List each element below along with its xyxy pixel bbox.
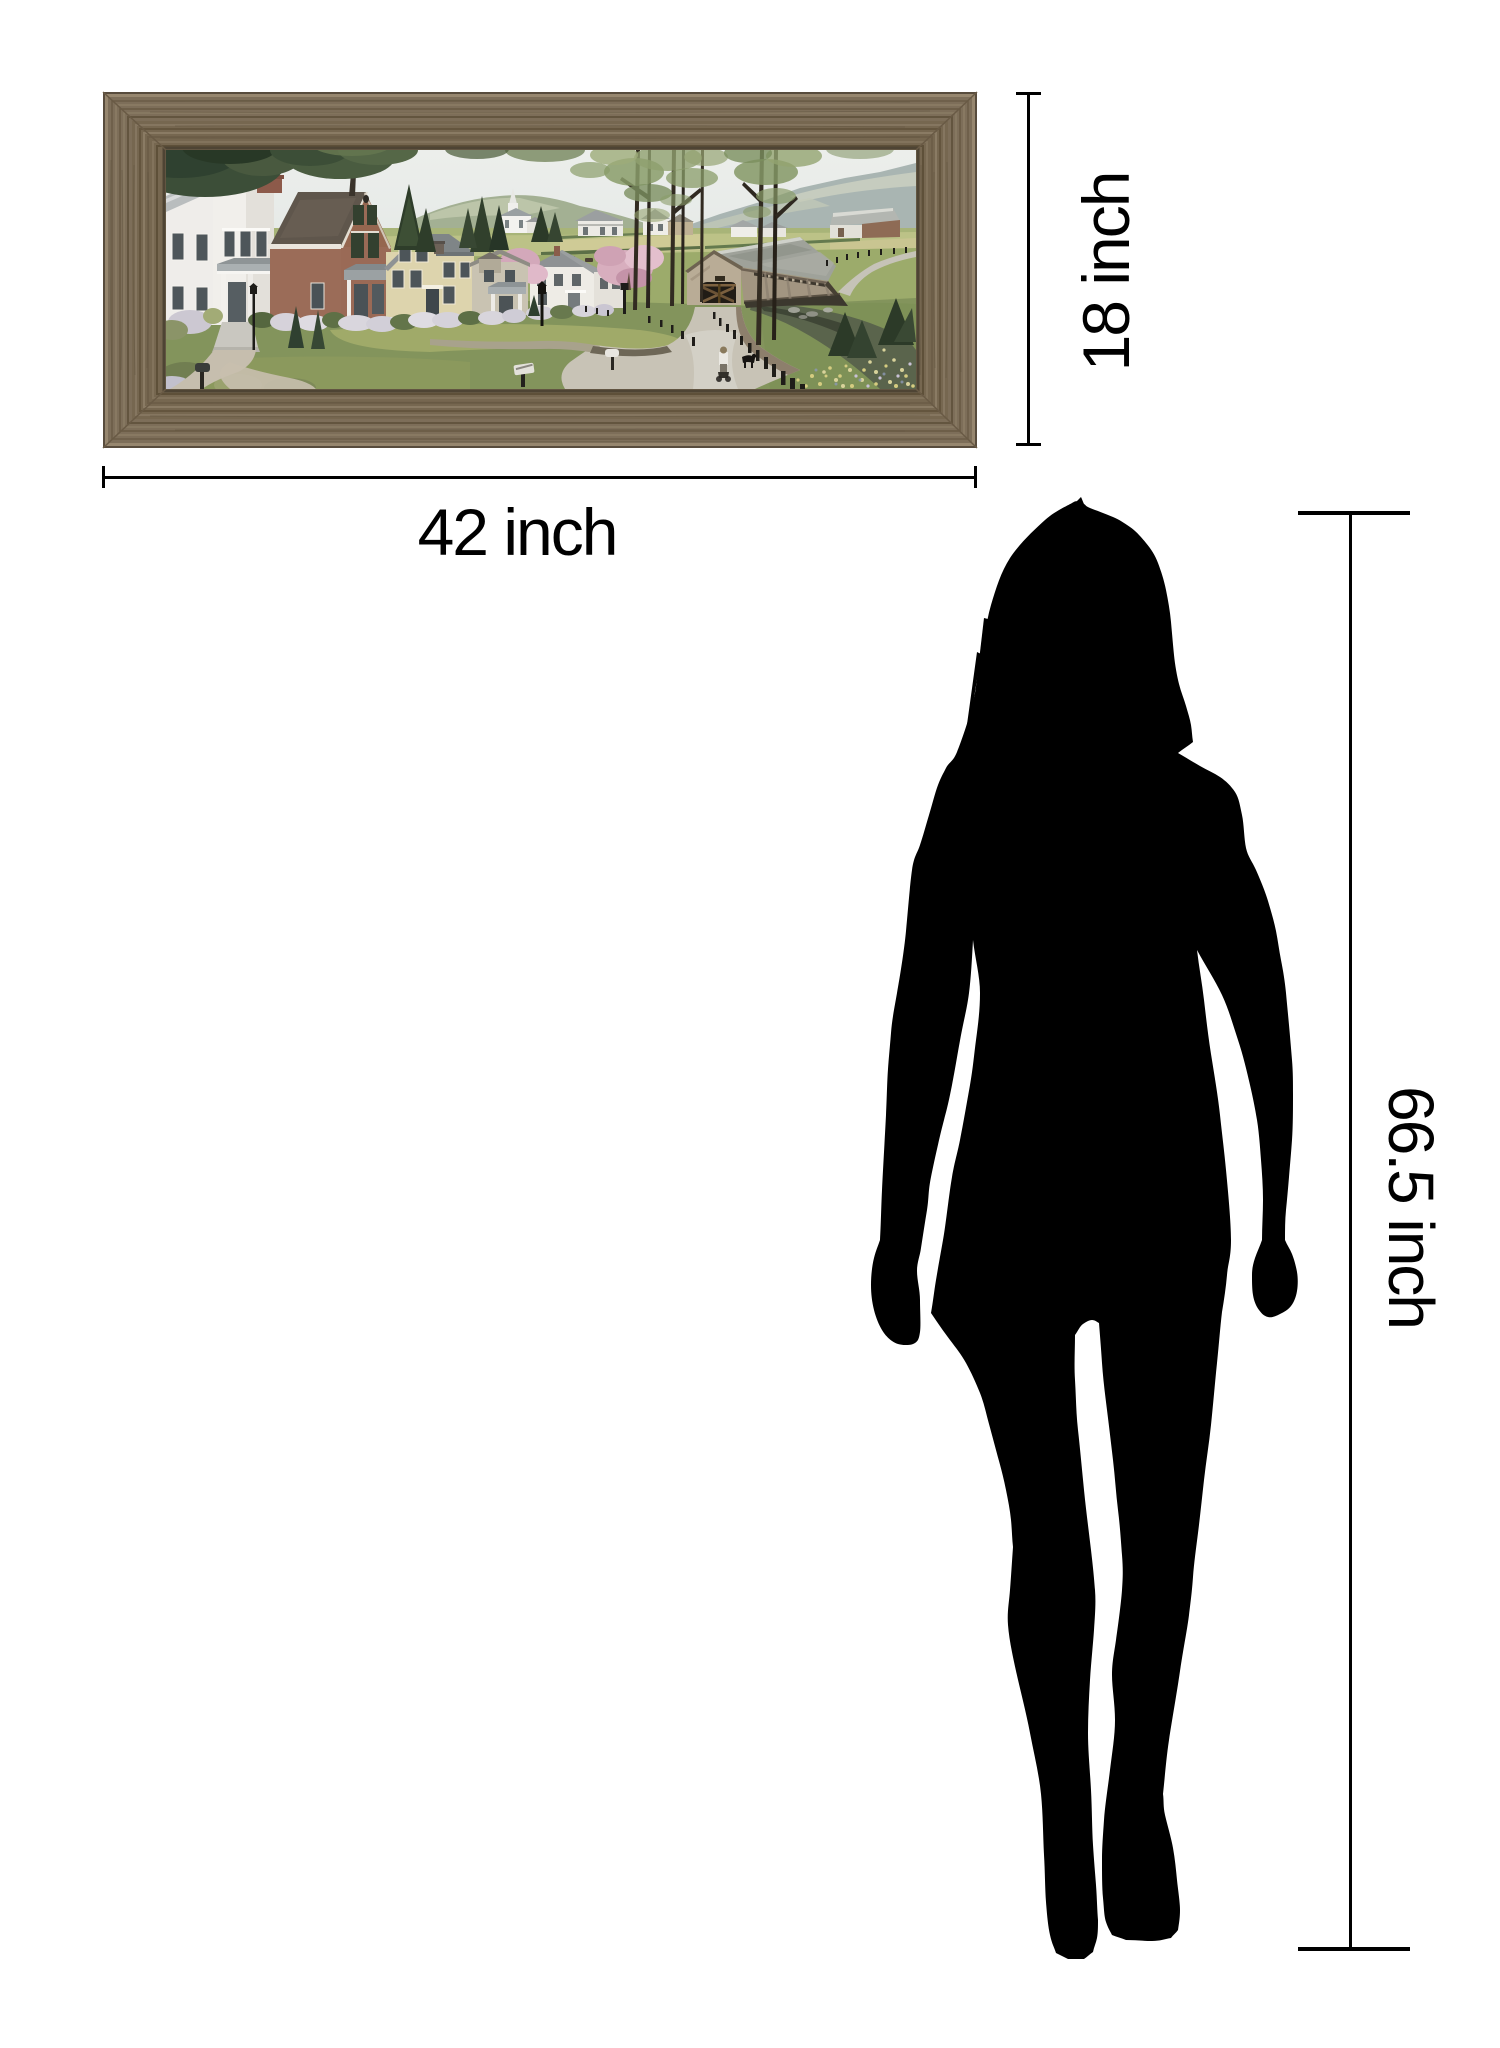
- svg-text:66.5 inch: 66.5 inch: [1375, 1086, 1447, 1328]
- svg-text:42 inch: 42 inch: [418, 495, 617, 569]
- svg-text:18 inch: 18 inch: [1069, 173, 1143, 372]
